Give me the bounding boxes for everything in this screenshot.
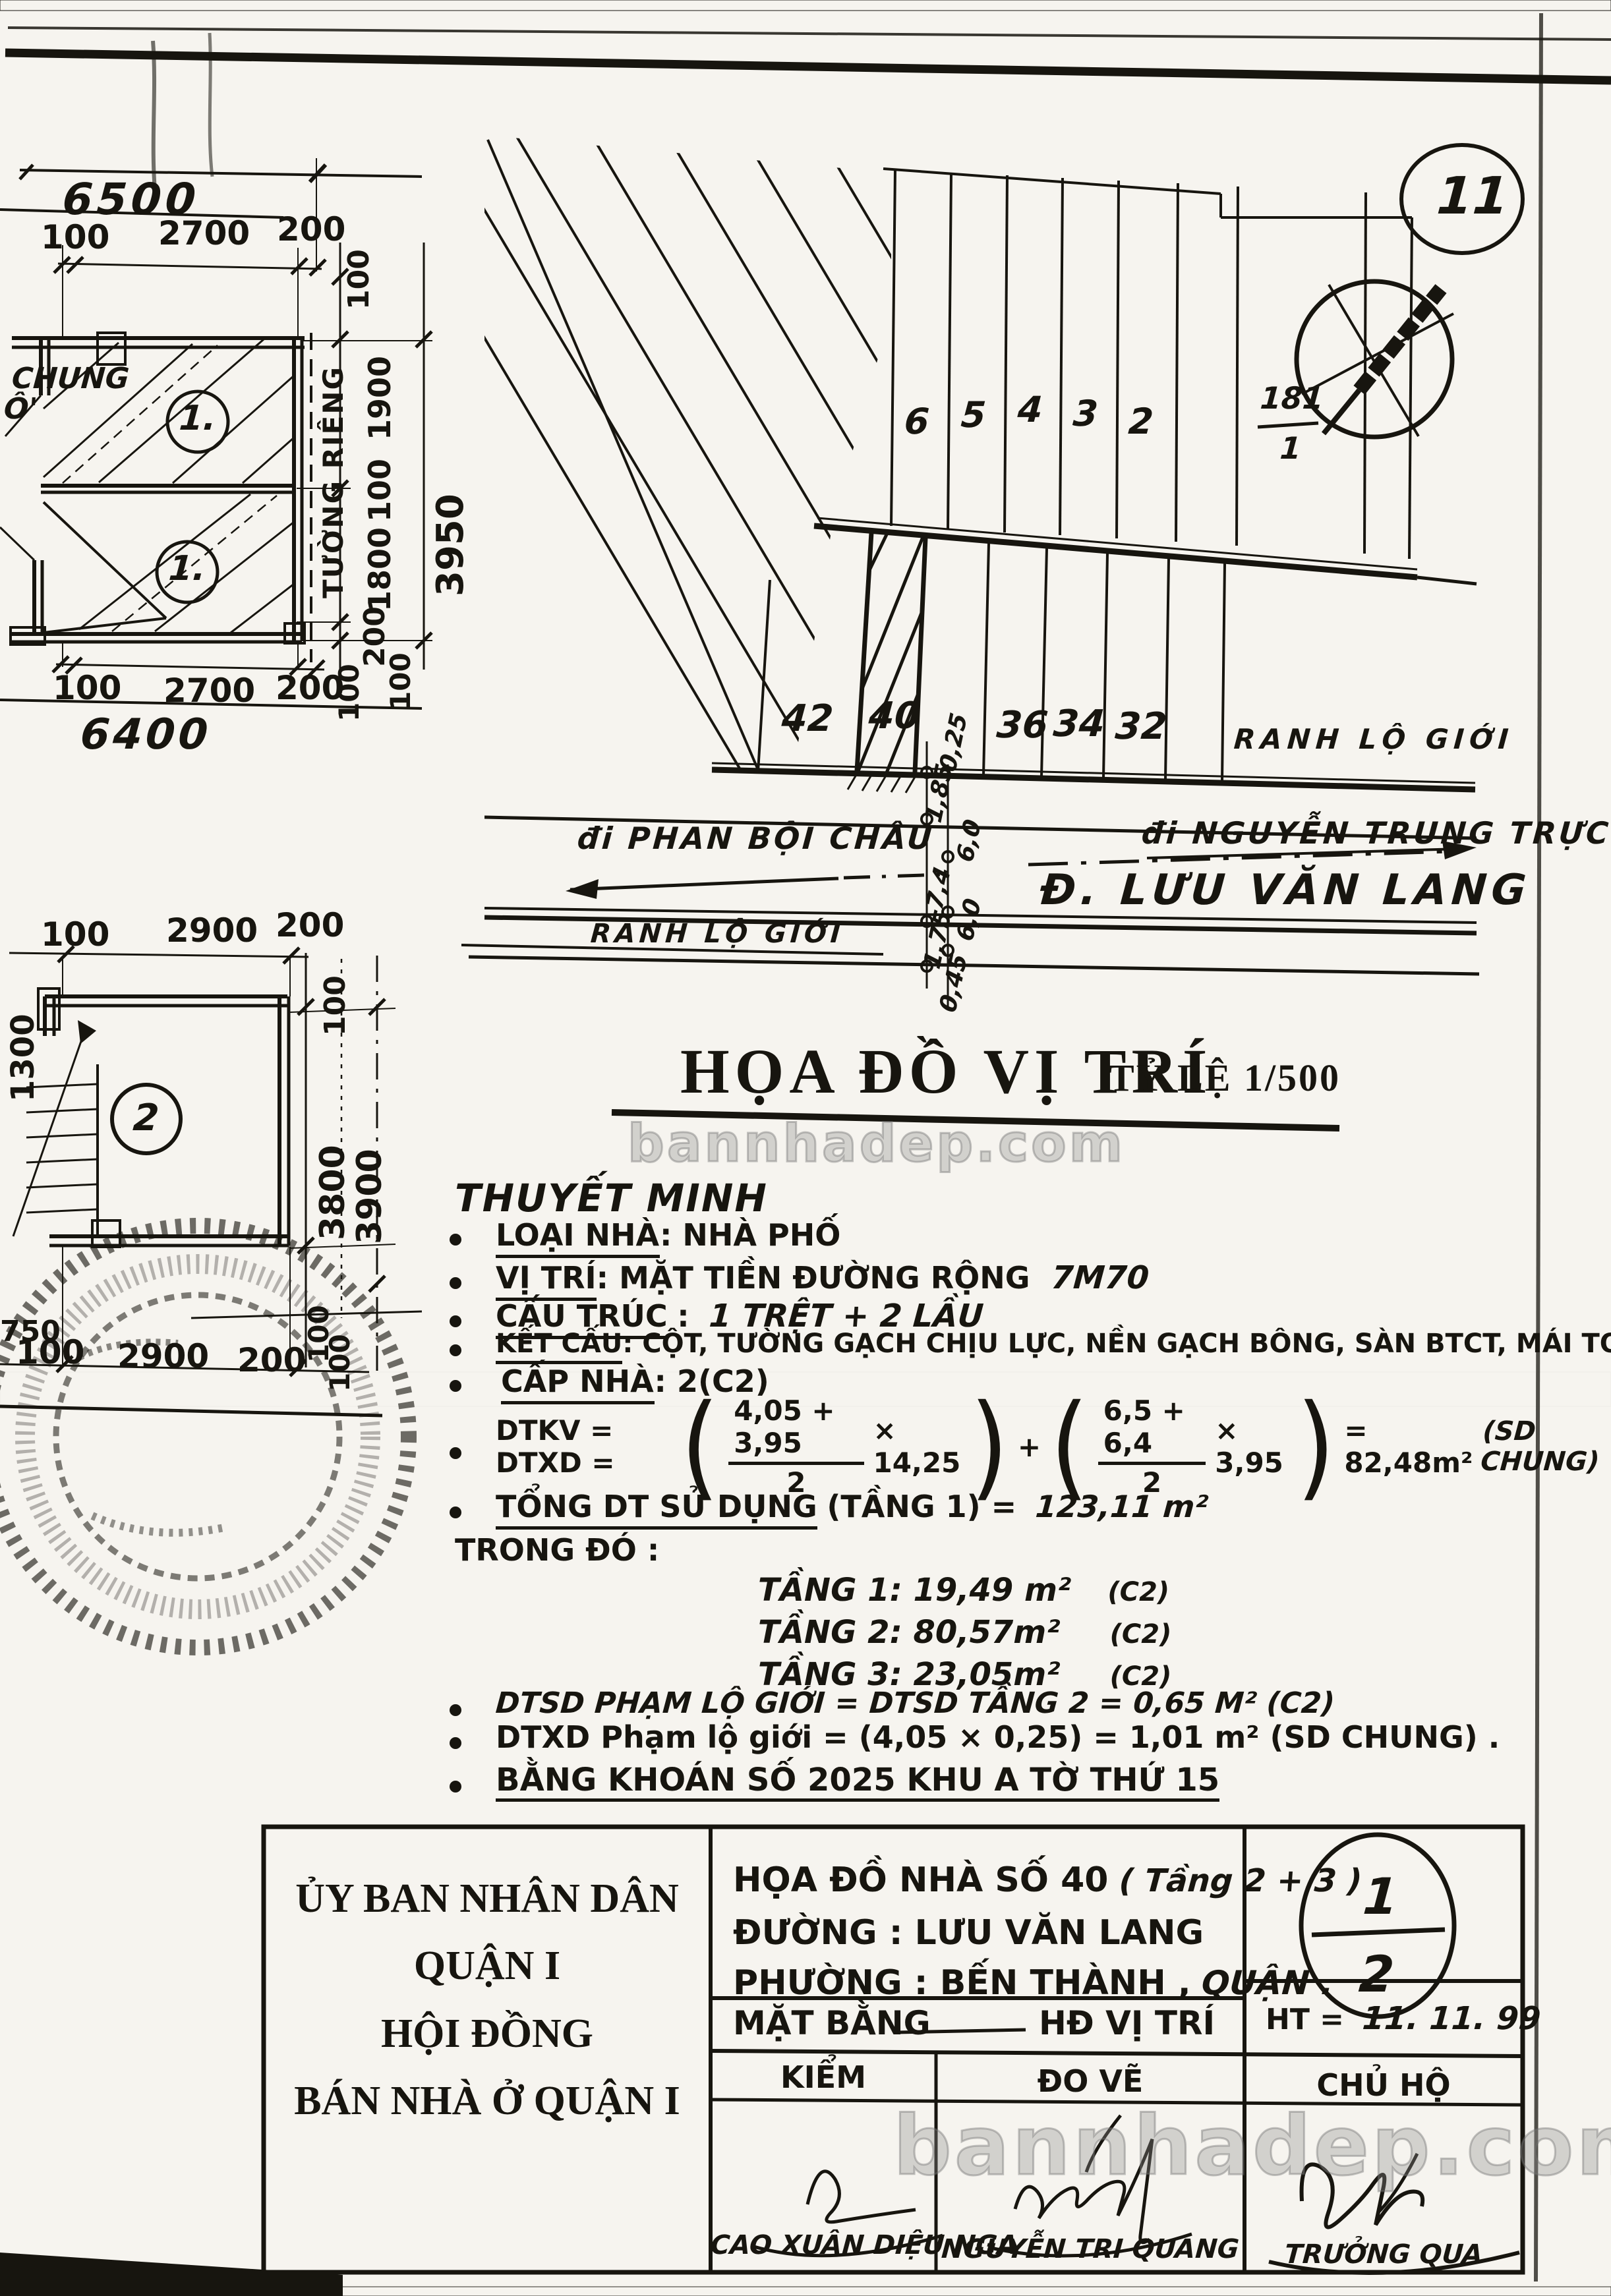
doc-title-hand: ( Tầng 2 + 3 ): [1118, 1864, 1363, 1897]
row2-right: HĐ VỊ TRÍ: [1039, 2006, 1215, 2041]
bullet: [450, 1507, 461, 1518]
formula-mult: × 14,25: [873, 1414, 961, 1479]
formula-numerator: 4,05 + 3,95: [728, 1394, 864, 1465]
bullet: [450, 1781, 461, 1793]
page-title-scale: TỶ LỆ 1/500: [1109, 1058, 1341, 1099]
area-formula: DTKV = DTXD = ( 4,05 + 3,952 × 14,25 ) +…: [496, 1397, 1611, 1496]
notes-heading: THUYẾT MINH: [455, 1178, 768, 1219]
sheet-number-top: 1: [1361, 1870, 1399, 1923]
note-dtsd: DTSD PHẠM LỘ GIỚI = DTSD TẦNG 2 = 0,65 M…: [494, 1688, 1335, 1719]
bullet: [450, 1234, 461, 1246]
bullet: [450, 1315, 461, 1327]
floor-area-note: (C2): [1107, 1577, 1169, 1607]
note-label: TỔNG DT SỬ DỤNG: [496, 1489, 817, 1530]
lot-number: 32: [1114, 708, 1168, 747]
org-line: BÁN NHÀ Ở QUẬN I: [264, 2067, 711, 2135]
lot-number-fraction-top: 181: [1259, 382, 1324, 414]
org-line: HỘI ĐỒNG: [264, 2000, 711, 2067]
note-bang-khoan: BẰNG KHOÁN SỐ 2025 KHU A TỜ THỨ 15: [496, 1764, 1219, 1802]
formula-lead: DTKV = DTXD =: [496, 1414, 672, 1479]
formula-mult: × 3,95: [1215, 1414, 1287, 1479]
bullet: [450, 1380, 461, 1392]
sign-name-dove: NGUYỄN TRI QUANG: [935, 2235, 1246, 2263]
note-dtxd: DTXD Phạm lộ giới = (4,05 × 0,25) = 1,01…: [496, 1721, 1500, 1753]
sign-name-kiem: CAO XUÂN DIỆU NGA: [710, 2231, 937, 2259]
lot-number-fraction-bottom: 1: [1279, 432, 1302, 464]
formula-paren: (: [1050, 1401, 1089, 1492]
sign-header-dove: ĐO VẼ: [936, 2065, 1245, 2097]
floor-area-note: (C2): [1110, 1619, 1172, 1650]
note-value: : MẶT TIỀN ĐƯỜNG RỘNG: [597, 1260, 1030, 1296]
floor-area: TẦNG 2: 80,57m²: [758, 1614, 1060, 1651]
street-direction-left: đi PHAN BỘI CHÂU: [576, 822, 935, 854]
boundary-label: RANH LỘ GIỚI: [590, 920, 846, 948]
lot-number: 3: [1072, 395, 1099, 433]
formula-result: = 82,48m²: [1344, 1414, 1473, 1479]
bullet: [450, 1447, 461, 1459]
doc-ward: PHƯỜNG : BẾN THÀNH ,: [733, 1963, 1191, 2003]
lot-number: 42: [780, 700, 835, 739]
date-label: HT =: [1266, 2003, 1344, 2036]
doc-street: ĐƯỜNG : LƯU VĂN LANG: [733, 1915, 1204, 1951]
sign-header-chuho: CHỦ HỘ: [1245, 2069, 1523, 2101]
note-value: : NHÀ PHỐ: [660, 1217, 840, 1253]
date-value: 11. 11. 99: [1361, 2002, 1542, 2035]
formula-paren: (: [681, 1401, 720, 1492]
bullet: [450, 1737, 461, 1749]
watermark: bannhadep.com: [628, 1118, 1125, 1172]
formula-paren: ): [970, 1401, 1009, 1492]
scanned-document-page: 11 6500 100 2700 200 100 1900 100 1800 2…: [0, 0, 1611, 2296]
lot-number: 34: [1052, 705, 1106, 744]
street-name: Đ. LƯU VĂN LANG: [1039, 869, 1533, 913]
sign-header-kiem: KIỂM: [711, 2061, 936, 2093]
note-mid: (TẦNG 1) =: [827, 1489, 1016, 1524]
formula-numerator: 6,5 + 6,4: [1098, 1394, 1206, 1465]
formula-note: (SD CHUNG): [1480, 1416, 1611, 1477]
lot-number: 2: [1127, 403, 1155, 441]
bullet: [450, 1344, 461, 1356]
lot-number: 4: [1016, 391, 1044, 429]
note-value-handwritten: 1 TRỆT + 2 LẦU: [709, 1300, 985, 1333]
bullet: [450, 1277, 461, 1289]
row2-left: MẶT BẰNG: [733, 2006, 931, 2041]
note-value: : CỘT, TƯỜNG GẠCH CHỊU LỰC, NỀN GẠCH BÔN…: [622, 1329, 1611, 1359]
doc-title: HỌA ĐỒ NHÀ SỐ 40: [733, 1860, 1108, 1900]
street-direction-right: đi NGUYỄN TRUNG TRỰC: [1140, 817, 1611, 849]
lot-number: 36: [995, 706, 1049, 745]
watermark: bannhadep.com: [893, 2104, 1611, 2189]
note-label: KẾT CẤU: [496, 1329, 622, 1364]
boundary-label: RANH LỘ GIỚI: [1233, 725, 1514, 754]
formula-paren: ): [1297, 1401, 1335, 1492]
doc-ward-hand: QUẬN .: [1200, 1966, 1335, 2001]
sign-name-chuho: TRƯỞNG QUA: [1244, 2241, 1524, 2268]
lot-number: 40: [867, 697, 922, 736]
note-value-handwritten: 7M70: [1050, 1261, 1150, 1294]
lot-number: 6: [903, 403, 931, 441]
note-label: VỊ TRÍ: [496, 1260, 597, 1301]
org-line: QUẬN I: [264, 1932, 711, 1999]
issuing-org: ỦY BAN NHÂN DÂN QUẬN I HỘI ĐỒNG BÁN NHÀ …: [264, 1865, 711, 2135]
org-line: ỦY BAN NHÂN DÂN: [264, 1865, 711, 1932]
bullet: [450, 1704, 461, 1716]
note-text: TRONG ĐÓ :: [455, 1534, 659, 1566]
note-value-handwritten: 123,11 m²: [1034, 1491, 1209, 1522]
note-label: LOẠI NHÀ: [496, 1217, 660, 1258]
formula-plus: +: [1018, 1431, 1041, 1463]
sheet-number-bottom: 2: [1357, 1948, 1395, 2001]
floor-area: TẦNG 1: 19,49 m²: [758, 1572, 1071, 1609]
lot-number: 5: [960, 397, 987, 434]
